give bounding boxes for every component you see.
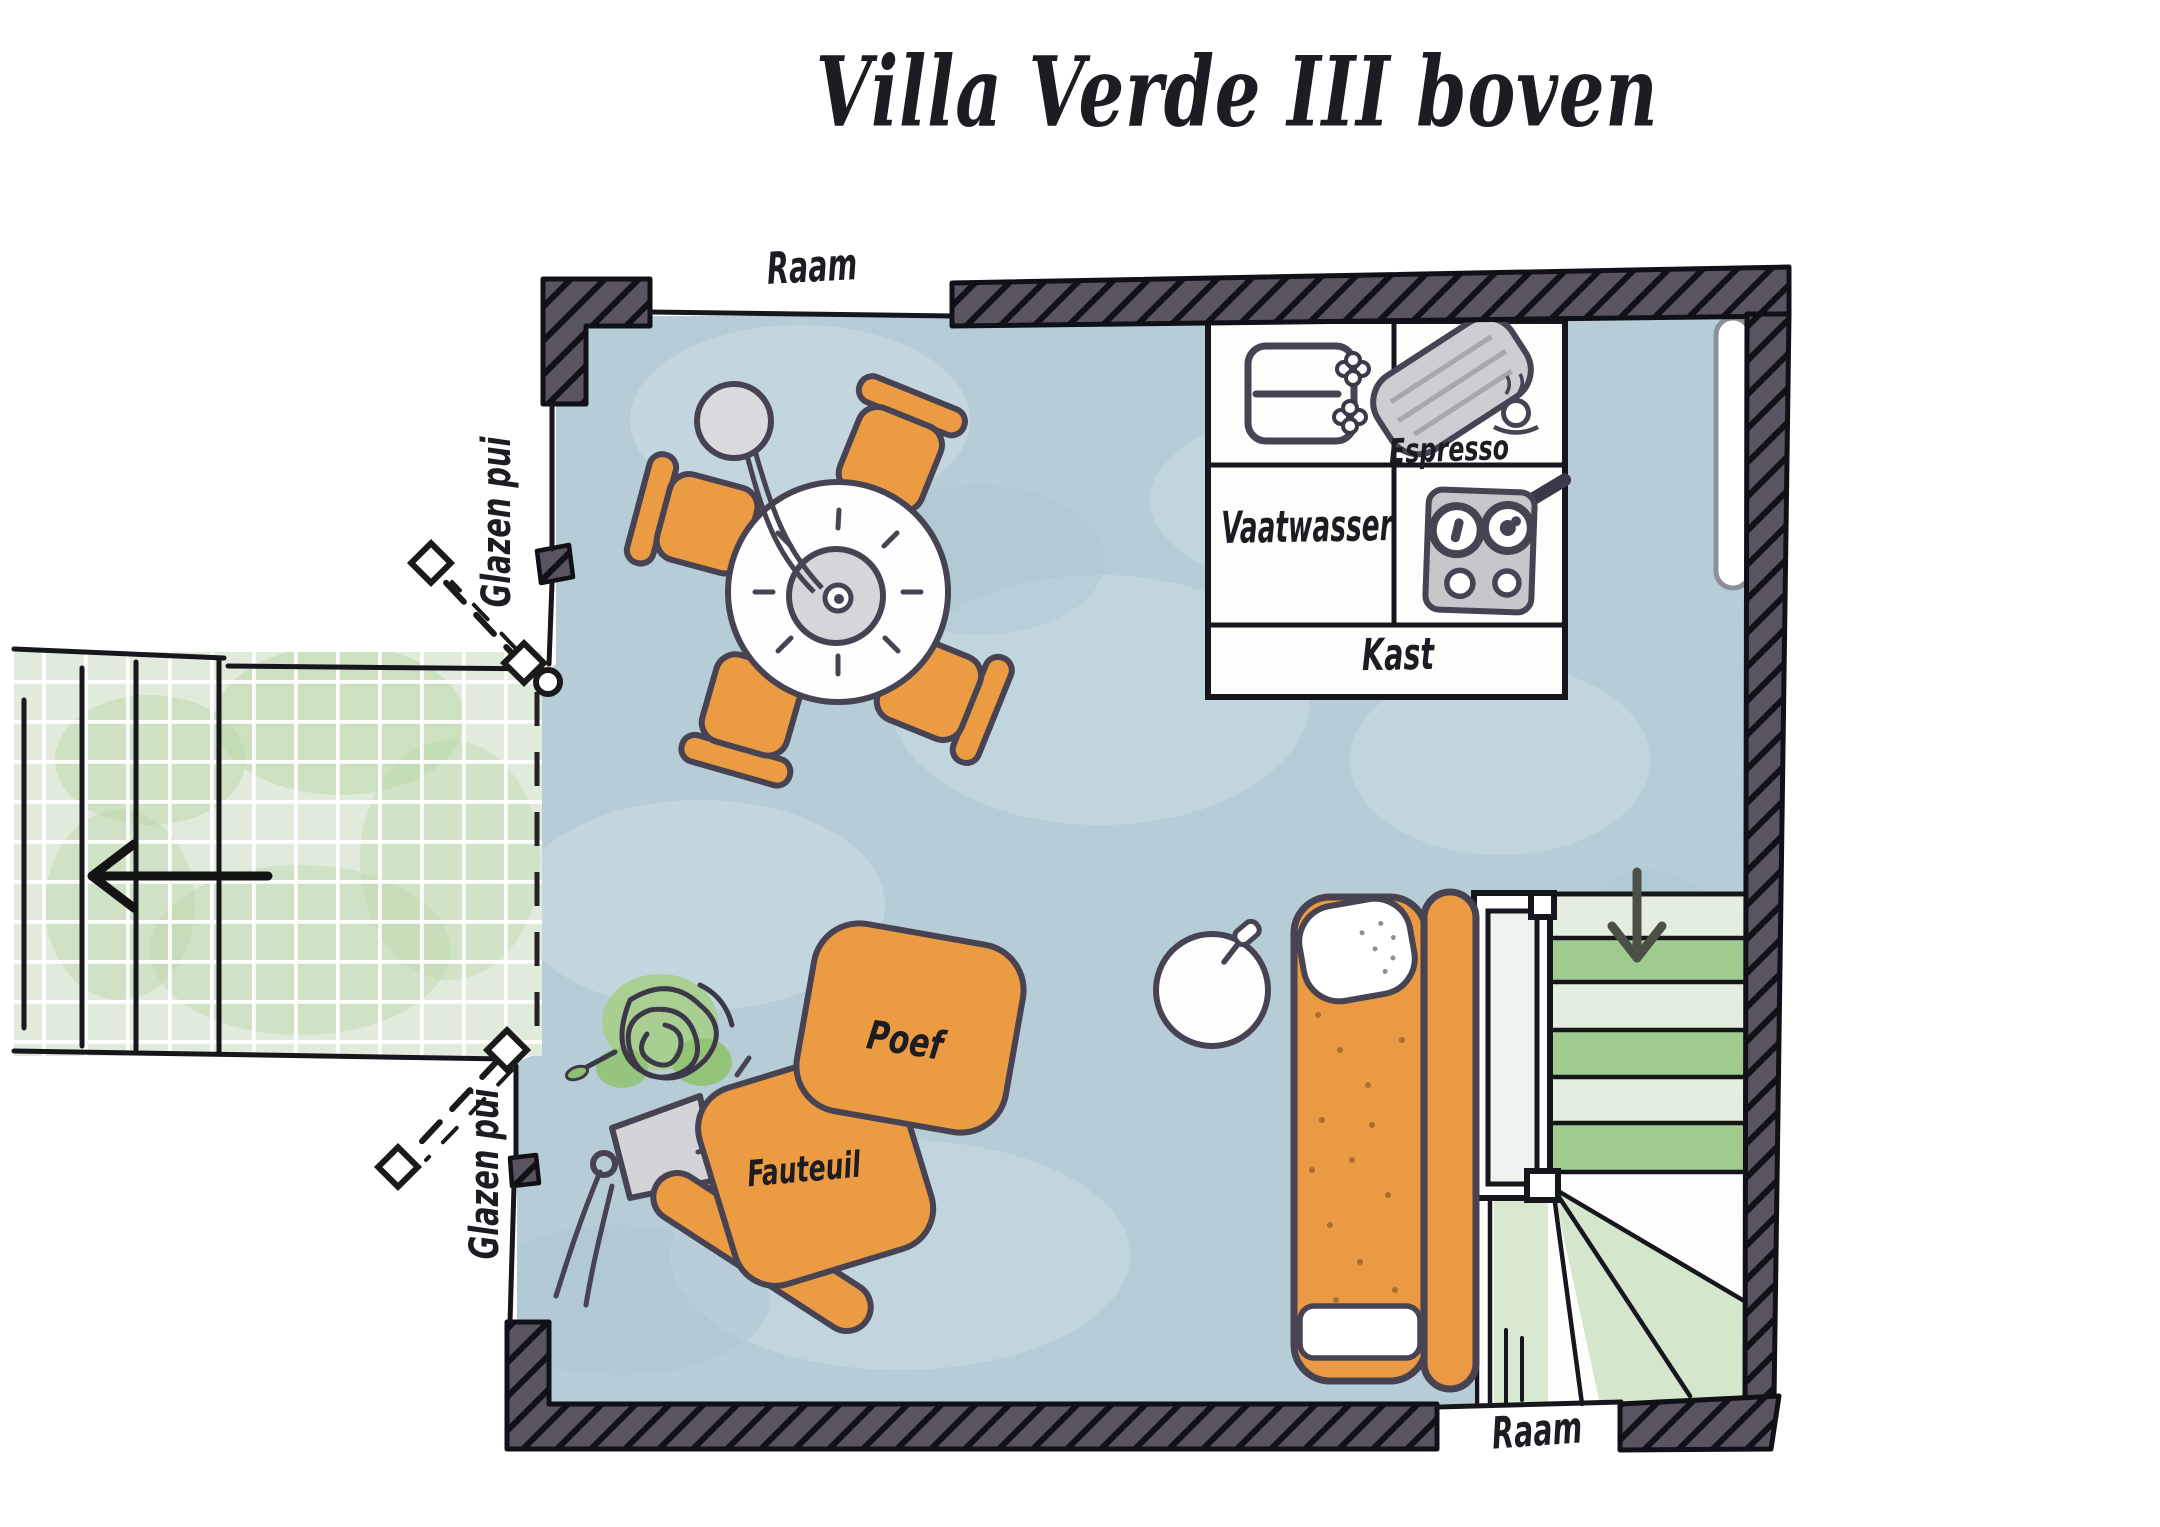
stairs-balustrade <box>1474 893 1558 1200</box>
wall-bottom-right <box>1620 1396 1779 1450</box>
wall-pier-upper <box>537 545 573 583</box>
floorplan-drawing <box>0 0 2160 1527</box>
label-window-bottom: Raam <box>1490 1402 1584 1459</box>
page-title: Villa Verde III boven <box>816 36 1659 149</box>
wall-top <box>952 267 1789 326</box>
floorplan-canvas: Villa Verde III boven Raam Glazen pui Gl… <box>0 0 2160 1527</box>
sofa-pillow <box>1294 893 1421 1007</box>
wall-pier-lower <box>510 1155 539 1186</box>
label-glass-facade-upper: Glazen pui <box>474 437 520 608</box>
label-window-top: Raam <box>766 239 859 295</box>
terrace <box>14 645 542 1059</box>
stairs <box>1474 872 1748 1406</box>
wall-right <box>1745 314 1789 1400</box>
sofa <box>1294 892 1476 1389</box>
label-espresso: Espresso <box>1388 428 1509 472</box>
window-top-line <box>650 312 952 316</box>
label-glass-facade-lower: Glazen pui <box>462 1089 508 1260</box>
label-cupboard: Kast <box>1361 629 1434 681</box>
pendant-lamp-icon <box>697 384 771 458</box>
label-dishwasher: Vaatwasser <box>1221 500 1393 554</box>
sofa-blanket <box>1300 1306 1420 1358</box>
